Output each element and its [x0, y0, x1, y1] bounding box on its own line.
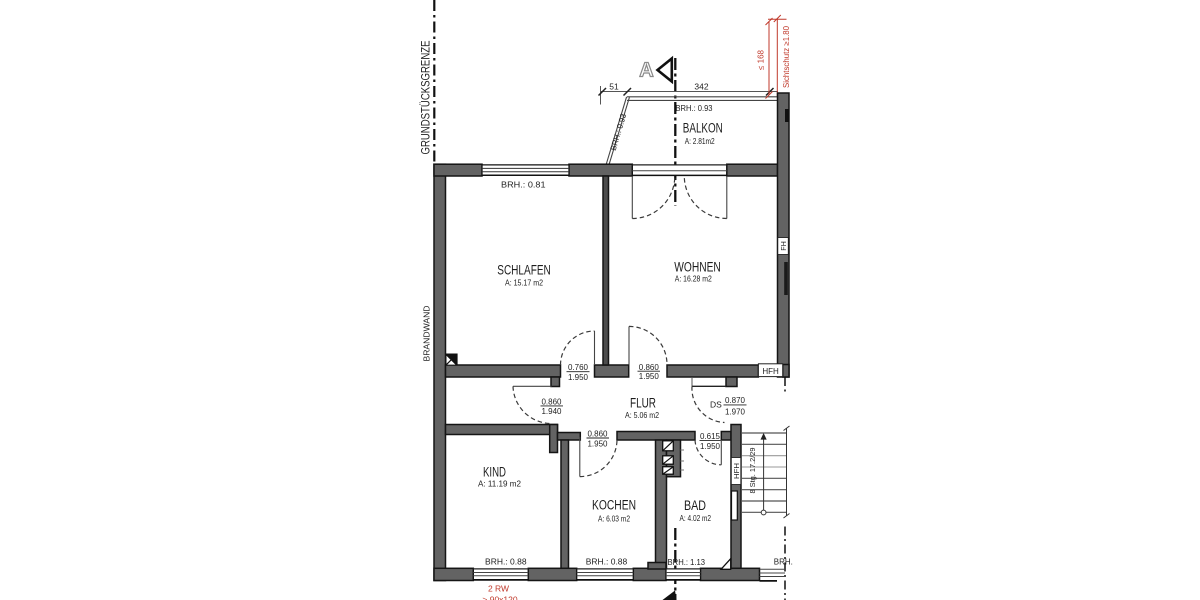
svg-text:BAD: BAD — [684, 498, 706, 513]
svg-text:1.950: 1.950 — [700, 442, 721, 451]
svg-text:0.860: 0.860 — [639, 363, 660, 372]
svg-text:0.870: 0.870 — [725, 396, 746, 405]
svg-text:1.950: 1.950 — [639, 372, 660, 381]
svg-text:BRH.: 0.81: BRH.: 0.81 — [501, 181, 546, 190]
svg-text:1.970: 1.970 — [725, 407, 746, 416]
svg-text:BRH.: 0.88: BRH.: 0.88 — [485, 557, 527, 566]
svg-text:WOHNEN: WOHNEN — [674, 260, 721, 275]
svg-text:A: 4.02 m2: A: 4.02 m2 — [680, 514, 712, 523]
svg-text:A: 2.81m2: A: 2.81m2 — [685, 137, 715, 146]
svg-text:0.760: 0.760 — [568, 363, 589, 372]
svg-text:KOCHEN: KOCHEN — [592, 498, 636, 513]
svg-text:HFH: HFH — [732, 463, 741, 479]
svg-text:BALKON: BALKON — [683, 121, 723, 136]
svg-text:A: 11.19 m2: A: 11.19 m2 — [478, 480, 522, 489]
svg-text:SCHLAFEN: SCHLAFEN — [497, 262, 551, 277]
svg-text:A: 6.03 m2: A: 6.03 m2 — [598, 515, 630, 524]
svg-text:8 Stg. 17.2/29: 8 Stg. 17.2/29 — [748, 448, 757, 494]
svg-text:342: 342 — [694, 82, 708, 92]
svg-text:BRH.: BRH. — [774, 558, 793, 567]
svg-text:0.860: 0.860 — [541, 397, 562, 406]
svg-text:HFH: HFH — [762, 367, 779, 376]
svg-text:1.950: 1.950 — [568, 373, 589, 382]
svg-text:1.950: 1.950 — [587, 440, 608, 449]
svg-text:FLUR: FLUR — [630, 396, 656, 411]
svg-text:BRH.: 0.88: BRH.: 0.88 — [586, 557, 628, 566]
svg-text:BRH.: 0.93: BRH.: 0.93 — [676, 104, 713, 113]
svg-text:GRUNDSTÜCKSGRENZE: GRUNDSTÜCKSGRENZE — [421, 40, 433, 154]
svg-text:0.615: 0.615 — [700, 432, 721, 441]
svg-text:A: 5.06 m2: A: 5.06 m2 — [625, 411, 659, 420]
svg-text:BRH.: 1.13: BRH.: 1.13 — [668, 558, 706, 567]
svg-text:> 90x120: > 90x120 — [482, 595, 517, 600]
svg-text:51: 51 — [609, 82, 619, 92]
svg-text:A: 16.28 m2: A: 16.28 m2 — [675, 275, 712, 284]
svg-text:0.860: 0.860 — [587, 430, 608, 439]
svg-text:A: A — [639, 60, 653, 82]
svg-text:A: 15.17 m2: A: 15.17 m2 — [505, 279, 543, 288]
svg-text:Sichtschutz ≥1.80: Sichtschutz ≥1.80 — [782, 25, 791, 88]
svg-text:FH: FH — [779, 241, 788, 251]
svg-text:DS: DS — [710, 399, 722, 409]
svg-text:BRANDWAND: BRANDWAND — [423, 305, 432, 361]
svg-text:KIND: KIND — [483, 464, 506, 479]
svg-text:2 RW: 2 RW — [488, 584, 509, 594]
svg-text:1.940: 1.940 — [541, 407, 562, 416]
svg-text:≤ 168: ≤ 168 — [757, 49, 766, 70]
